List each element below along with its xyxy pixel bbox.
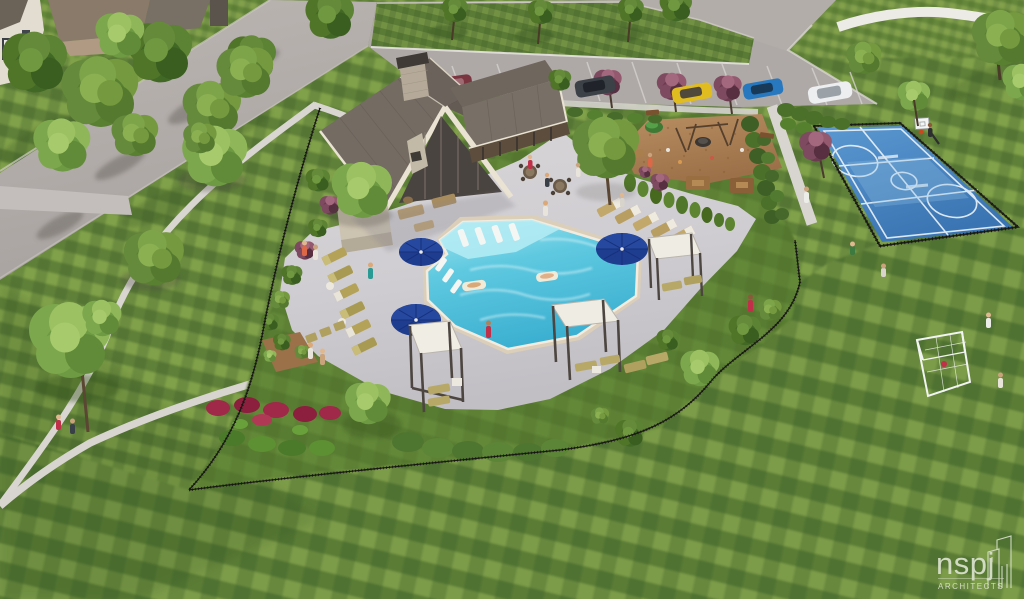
svg-text:ARCHITECTS: ARCHITECTS — [938, 582, 1004, 591]
svg-text:nspj: nspj — [936, 546, 995, 581]
